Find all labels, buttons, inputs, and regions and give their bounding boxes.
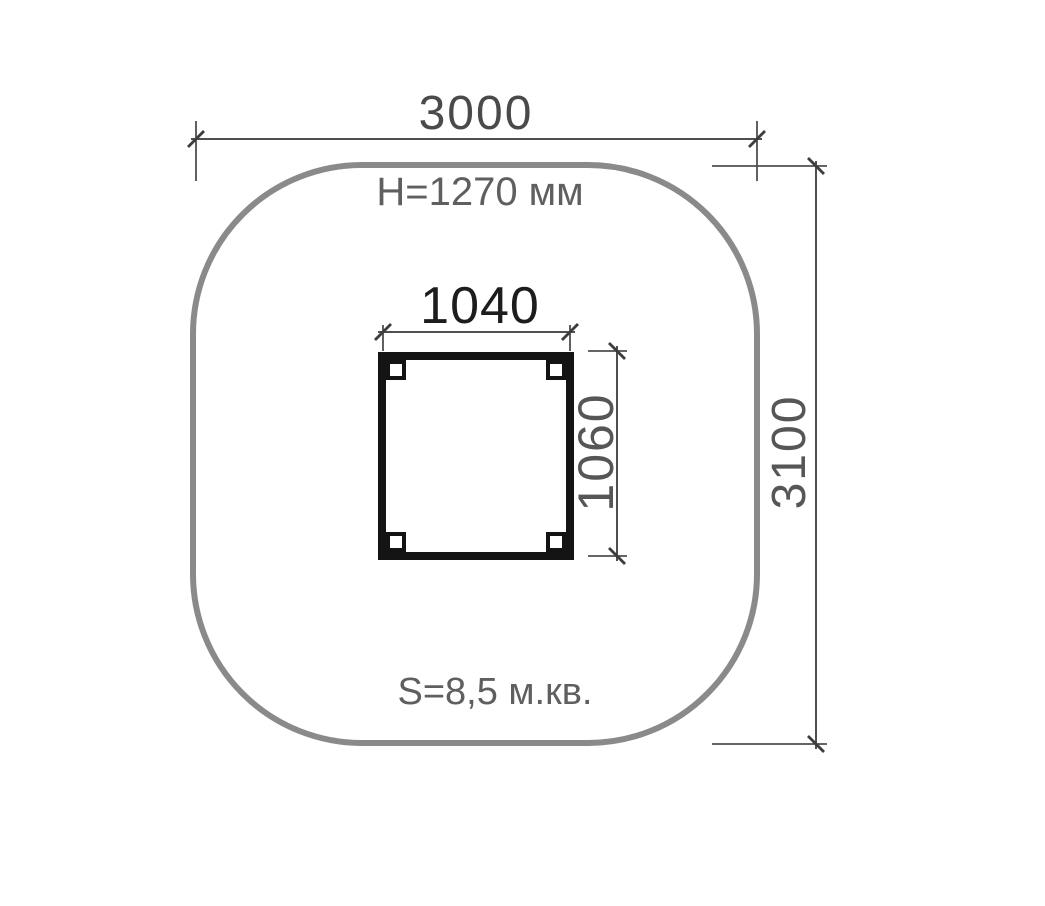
equipment-height-label: H=1270 мм <box>330 172 630 212</box>
outer-width-label: 3000 <box>326 90 626 138</box>
outer-height-label: 3100 <box>766 395 814 510</box>
technical-drawing-canvas: 3000 H=1270 мм 1040 1060 3100 S=8,5 м.кв… <box>0 0 1045 906</box>
inner-height-label: 1060 <box>571 392 621 511</box>
inner-width-label: 1040 <box>330 280 630 332</box>
area-label: S=8,5 м.кв. <box>345 673 645 711</box>
